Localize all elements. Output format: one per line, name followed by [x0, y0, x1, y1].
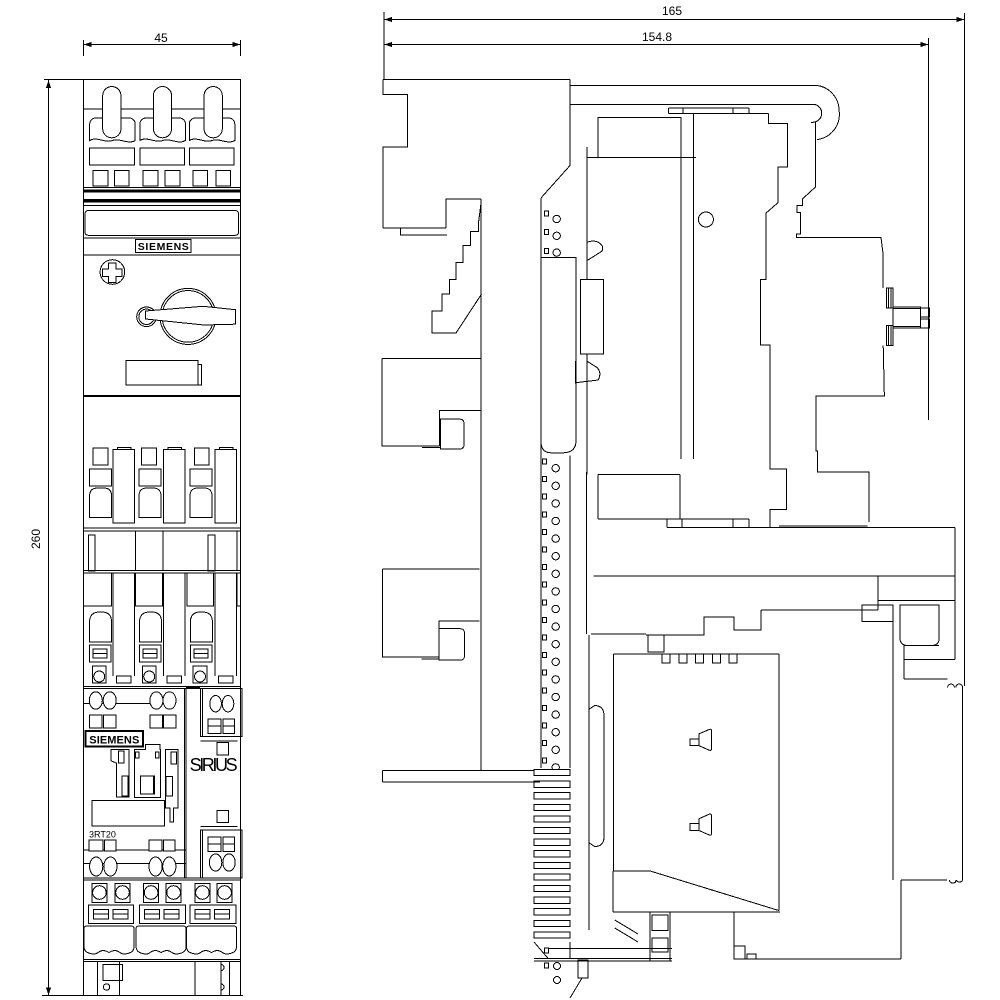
svg-text:165: 165 — [662, 4, 682, 18]
svg-text:SIEMENS: SIEMENS — [138, 241, 189, 253]
svg-text:45: 45 — [154, 31, 168, 45]
svg-text:154.8: 154.8 — [642, 30, 672, 44]
svg-text:260: 260 — [29, 529, 43, 549]
svg-text:SIRIUS: SIRIUS — [190, 755, 238, 775]
svg-text:SIEMENS: SIEMENS — [89, 734, 139, 746]
svg-text:3RT20: 3RT20 — [89, 830, 116, 840]
